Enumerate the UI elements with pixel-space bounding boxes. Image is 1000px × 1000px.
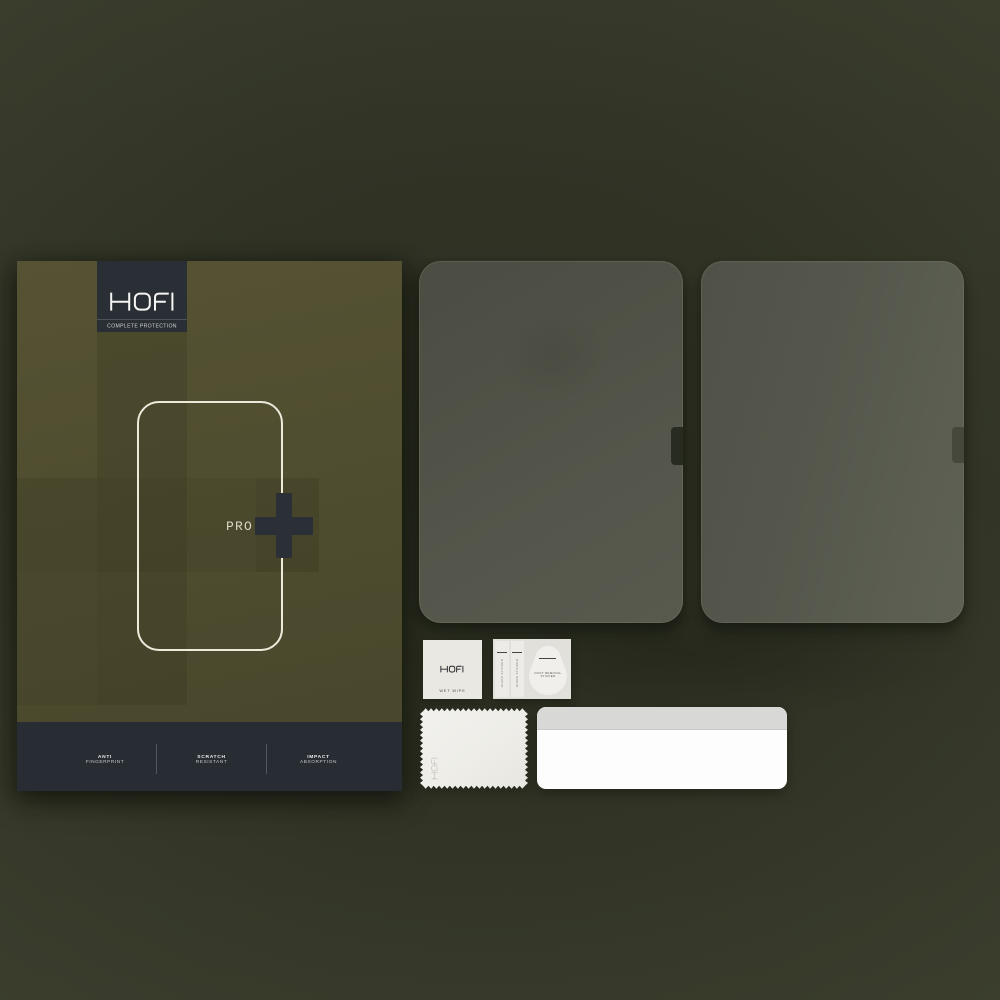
svg-text:WET WIPE: WET WIPE xyxy=(439,689,465,693)
svg-text:COMPLETE PROTECTION: COMPLETE PROTECTION xyxy=(107,324,177,330)
